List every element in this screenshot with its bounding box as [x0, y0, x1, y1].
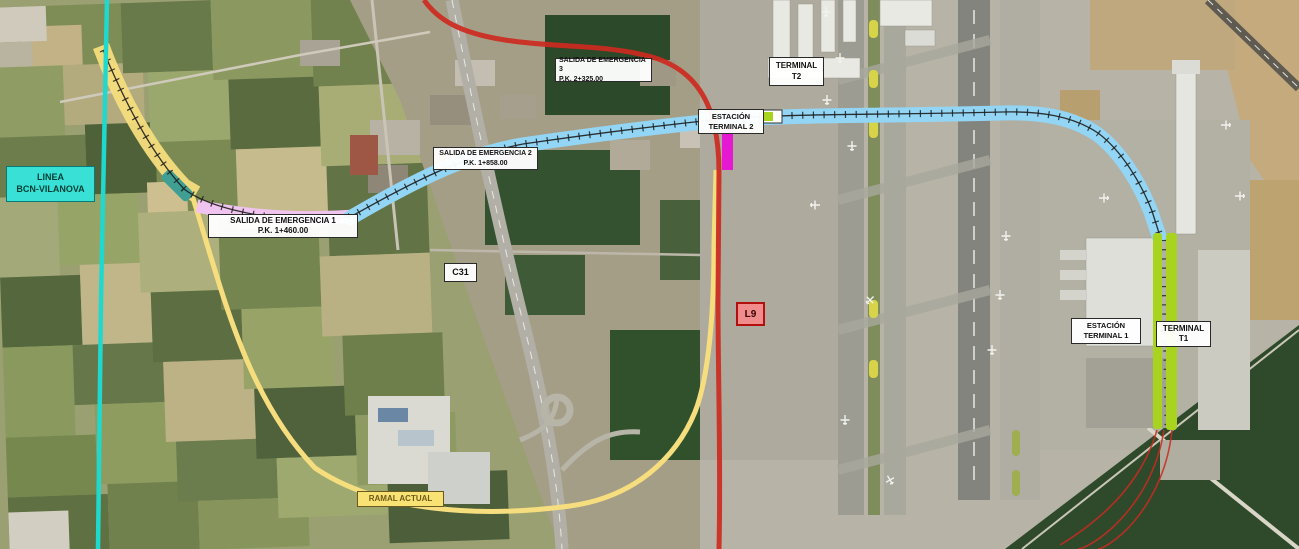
label-terminal-t1: TERMINAL T1	[1156, 321, 1211, 347]
label-estacion-terminal-1: ESTACIÓN TERMINAL 1	[1071, 318, 1141, 344]
label-line: P.K. 1+460.00	[212, 226, 354, 236]
label-salida-emergencia-3: SALIDA DE EMERGENCIA 3 P.K. 2+325.00	[555, 58, 652, 82]
label-line: BCN-VILANOVA	[10, 184, 91, 196]
terminal2-station-marker	[762, 110, 782, 123]
label-line: C31	[448, 267, 473, 279]
label-line: SALIDA DE EMERGENCIA 1	[212, 216, 354, 226]
label-line: ESTACIÓN	[702, 112, 760, 122]
label-line: LINEA	[10, 172, 91, 184]
label-line: TERMINAL 2	[702, 122, 760, 132]
satellite-basemap	[0, 0, 1299, 549]
label-line: ESTACIÓN	[1075, 321, 1137, 331]
label-estacion-terminal-2: ESTACIÓN TERMINAL 2	[698, 109, 764, 134]
label-salida-emergencia-2: SALIDA DE EMERGENCIA 2 P.K. 1+858.00	[433, 147, 538, 170]
label-line: T2	[773, 72, 820, 82]
label-line: L9	[741, 308, 760, 321]
label-salida-emergencia-1: SALIDA DE EMERGENCIA 1 P.K. 1+460.00	[208, 214, 358, 238]
terminal2-station-bar	[722, 128, 733, 170]
label-terminal-t2: TERMINAL T2	[769, 57, 824, 86]
label-line: SALIDA DE EMERGENCIA 2	[437, 149, 534, 158]
label-line: SALIDA DE EMERGENCIA 3	[559, 56, 648, 74]
label-linea-bcn-vilanova: LINEA BCN-VILANOVA	[6, 166, 95, 202]
label-line: P.K. 1+858.00	[437, 159, 534, 168]
label-c31: C31	[444, 263, 477, 282]
label-l9: L9	[736, 302, 765, 326]
label-ramal-actual: RAMAL ACTUAL	[357, 491, 444, 507]
label-line: TERMINAL 1	[1075, 331, 1137, 341]
label-line: TERMINAL	[773, 61, 820, 71]
label-line: TERMINAL	[1160, 324, 1207, 334]
label-line: RAMAL ACTUAL	[361, 494, 440, 504]
label-line: P.K. 2+325.00	[559, 75, 603, 84]
label-line: T1	[1160, 334, 1207, 344]
airport-rail-plan-map: LINEA BCN-VILANOVA SALIDA DE EMERGENCIA …	[0, 0, 1299, 549]
